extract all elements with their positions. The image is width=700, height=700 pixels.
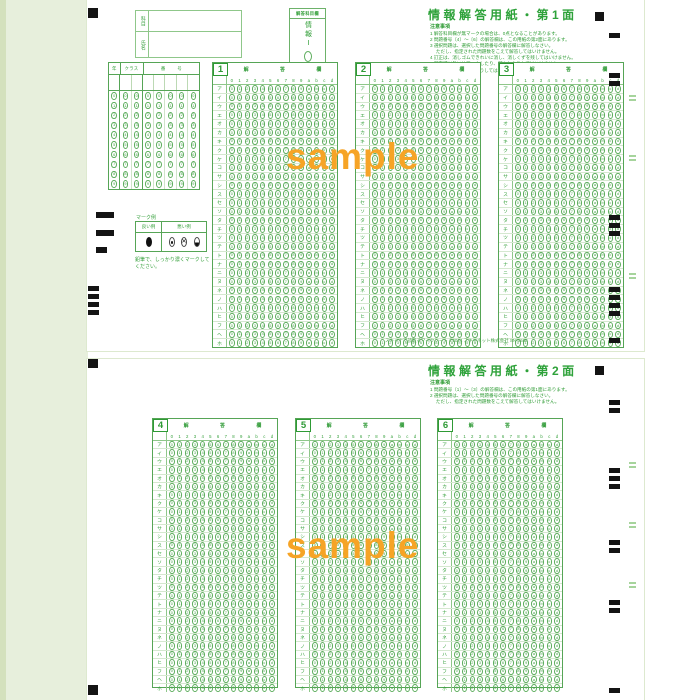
mark-bubble[interactable]: 4: [200, 449, 206, 456]
mark-bubble[interactable]: 4: [546, 190, 552, 197]
mark-bubble[interactable]: 7: [569, 225, 575, 232]
mark-bubble[interactable]: 9: [584, 85, 590, 92]
mark-bubble[interactable]: 2: [388, 331, 394, 338]
mark-bubble[interactable]: 3: [192, 508, 198, 515]
mark-bubble[interactable]: 5: [411, 225, 417, 232]
mark-bubble[interactable]: 5: [208, 458, 214, 465]
mark-bubble[interactable]: 1: [237, 85, 243, 92]
mark-bubble[interactable]: 5: [554, 339, 560, 346]
mark-bubble[interactable]: a: [592, 322, 598, 329]
mark-bubble[interactable]: 2: [245, 208, 251, 215]
mark-bubble[interactable]: 0: [515, 173, 521, 180]
mark-bubble[interactable]: 1: [523, 287, 529, 294]
mark-bubble[interactable]: b: [314, 111, 320, 118]
mark-bubble[interactable]: 3: [335, 592, 341, 599]
mark-bubble[interactable]: 4: [403, 287, 409, 294]
mark-bubble[interactable]: a: [246, 651, 252, 658]
mark-bubble[interactable]: a: [449, 147, 455, 154]
mark-bubble[interactable]: 6: [215, 500, 221, 507]
mark-bubble[interactable]: 7: [283, 339, 289, 346]
mark-bubble[interactable]: 4: [546, 269, 552, 276]
mark-bubble[interactable]: 0: [515, 164, 521, 171]
mark-bubble[interactable]: 7: [569, 111, 575, 118]
mark-bubble[interactable]: 0: [372, 182, 378, 189]
mark-bubble[interactable]: 9: [238, 609, 244, 616]
mark-bubble[interactable]: 2: [470, 558, 476, 565]
mark-bubble[interactable]: b: [254, 558, 260, 565]
mark-bubble[interactable]: 4: [260, 129, 266, 136]
mark-bubble[interactable]: 7: [223, 668, 229, 675]
mark-bubble[interactable]: 5: [554, 331, 560, 338]
mark-bubble[interactable]: 4: [343, 626, 349, 633]
mark-bubble[interactable]: d: [554, 668, 560, 675]
mark-bubble[interactable]: 8: [231, 651, 237, 658]
mark-bubble[interactable]: 5: [411, 208, 417, 215]
mark-bubble[interactable]: 6: [275, 94, 281, 101]
mark-bubble[interactable]: 1: [237, 278, 243, 285]
mark-bubble[interactable]: 0: [312, 634, 318, 641]
mark-bubble[interactable]: a: [449, 111, 455, 118]
mark-bubble[interactable]: 0: [515, 278, 521, 285]
mark-bubble[interactable]: c: [262, 567, 268, 574]
mark-bubble[interactable]: c: [465, 296, 471, 303]
mark-bubble[interactable]: 0: [454, 533, 460, 540]
mark-bubble[interactable]: 5: [208, 617, 214, 624]
mark-bubble[interactable]: 1: [523, 103, 529, 110]
mark-bubble[interactable]: d: [554, 651, 560, 658]
mark-bubble[interactable]: 9: [584, 296, 590, 303]
mark-bubble[interactable]: 4: [260, 331, 266, 338]
mark-bubble[interactable]: 2: [328, 475, 334, 482]
mark-bubble[interactable]: a: [449, 269, 455, 276]
mark-bubble[interactable]: 4: [200, 441, 206, 448]
mark-bubble[interactable]: 1: [380, 322, 386, 329]
mark-bubble[interactable]: c: [322, 217, 328, 224]
mark-bubble[interactable]: 9: [238, 676, 244, 683]
mark-bubble[interactable]: 2: [388, 252, 394, 259]
mark-bubble[interactable]: 2: [531, 190, 537, 197]
mark-bubble[interactable]: 3: [335, 676, 341, 683]
mark-bubble[interactable]: 5: [493, 558, 499, 565]
mark-bubble[interactable]: 2: [245, 85, 251, 92]
mark-bubble[interactable]: 4: [343, 466, 349, 473]
mark-bubble[interactable]: d: [412, 483, 418, 490]
mark-bubble[interactable]: 0: [515, 155, 521, 162]
mark-bubble[interactable]: c: [547, 491, 553, 498]
mark-bubble[interactable]: 8: [168, 171, 174, 178]
mark-bubble[interactable]: 8: [374, 475, 380, 482]
mark-bubble[interactable]: 4: [260, 111, 266, 118]
mark-bubble[interactable]: 2: [388, 208, 394, 215]
mark-bubble[interactable]: 7: [569, 155, 575, 162]
mark-bubble[interactable]: 6: [215, 533, 221, 540]
mark-bubble[interactable]: d: [554, 617, 560, 624]
mark-bubble[interactable]: 6: [358, 600, 364, 607]
mark-bubble[interactable]: 1: [320, 458, 326, 465]
mark-bubble[interactable]: 6: [561, 339, 567, 346]
mark-bubble[interactable]: b: [254, 575, 260, 582]
mark-bubble[interactable]: 0: [454, 458, 460, 465]
mark-bubble[interactable]: d: [472, 269, 478, 276]
mark-bubble[interactable]: c: [547, 483, 553, 490]
mark-bubble[interactable]: 6: [418, 199, 424, 206]
mark-bubble[interactable]: 5: [411, 182, 417, 189]
mark-bubble[interactable]: a: [592, 287, 598, 294]
mark-bubble[interactable]: 2: [388, 217, 394, 224]
mark-bubble[interactable]: 0: [169, 491, 175, 498]
mark-bubble[interactable]: 0: [372, 304, 378, 311]
mark-bubble[interactable]: 8: [577, 243, 583, 250]
mark-bubble[interactable]: c: [322, 103, 328, 110]
mark-bubble[interactable]: 6: [418, 313, 424, 320]
mark-bubble[interactable]: 1: [168, 102, 174, 109]
mark-bubble[interactable]: b: [397, 659, 403, 666]
mark-bubble[interactable]: 5: [208, 441, 214, 448]
mark-bubble[interactable]: 7: [426, 313, 432, 320]
mark-bubble[interactable]: 7: [569, 85, 575, 92]
mark-bubble[interactable]: 4: [200, 609, 206, 616]
mark-bubble[interactable]: a: [306, 111, 312, 118]
mark-bubble[interactable]: 1: [380, 208, 386, 215]
mark-bubble[interactable]: 5: [208, 567, 214, 574]
mark-bubble[interactable]: a: [592, 85, 598, 92]
mark-bubble[interactable]: d: [329, 208, 335, 215]
mark-bubble[interactable]: 9: [584, 120, 590, 127]
mark-bubble[interactable]: 0: [454, 475, 460, 482]
mark-bubble[interactable]: 7: [569, 138, 575, 145]
mark-bubble[interactable]: 5: [554, 304, 560, 311]
mark-bubble[interactable]: 5: [268, 287, 274, 294]
mark-bubble[interactable]: 7: [569, 103, 575, 110]
mark-bubble[interactable]: 5: [268, 111, 274, 118]
mark-bubble[interactable]: 1: [523, 111, 529, 118]
mark-bubble[interactable]: c: [405, 475, 411, 482]
mark-bubble[interactable]: 1: [380, 313, 386, 320]
mark-bubble[interactable]: d: [472, 190, 478, 197]
mark-bubble[interactable]: 4: [485, 651, 491, 658]
mark-bubble[interactable]: 5: [208, 475, 214, 482]
mark-bubble[interactable]: c: [262, 634, 268, 641]
mark-bubble[interactable]: 5: [554, 217, 560, 224]
mark-bubble[interactable]: 4: [200, 676, 206, 683]
mark-bubble[interactable]: 0: [454, 626, 460, 633]
mark-bubble[interactable]: 6: [215, 508, 221, 515]
mark-bubble[interactable]: 4: [485, 441, 491, 448]
mark-bubble[interactable]: a: [531, 676, 537, 683]
mark-bubble[interactable]: 5: [268, 234, 274, 241]
mark-bubble[interactable]: 8: [434, 243, 440, 250]
mark-bubble[interactable]: d: [412, 466, 418, 473]
mark-bubble[interactable]: 6: [500, 500, 506, 507]
mark-bubble[interactable]: 5: [351, 517, 357, 524]
mark-bubble[interactable]: 1: [177, 668, 183, 675]
mark-bubble[interactable]: a: [246, 567, 252, 574]
mark-bubble[interactable]: 0: [454, 542, 460, 549]
mark-bubble[interactable]: 0: [229, 190, 235, 197]
mark-bubble[interactable]: 8: [374, 466, 380, 473]
mark-bubble[interactable]: 9: [441, 234, 447, 241]
mark-bubble[interactable]: c: [405, 491, 411, 498]
mark-bubble[interactable]: c: [547, 466, 553, 473]
mark-bubble[interactable]: 6: [561, 331, 567, 338]
mark-bubble[interactable]: c: [547, 508, 553, 515]
mark-bubble[interactable]: 1: [320, 466, 326, 473]
mark-bubble[interactable]: 3: [335, 475, 341, 482]
mark-bubble[interactable]: d: [269, 600, 275, 607]
mark-bubble[interactable]: 1: [177, 626, 183, 633]
mark-bubble[interactable]: b: [314, 313, 320, 320]
mark-bubble[interactable]: d: [472, 252, 478, 259]
mark-bubble[interactable]: 0: [372, 331, 378, 338]
mark-bubble[interactable]: 8: [577, 173, 583, 180]
mark-bubble[interactable]: 4: [485, 508, 491, 515]
mark-bubble[interactable]: 4: [343, 575, 349, 582]
mark-bubble[interactable]: d: [554, 609, 560, 616]
mark-bubble[interactable]: d: [269, 668, 275, 675]
mark-bubble[interactable]: 2: [531, 199, 537, 206]
mark-bubble[interactable]: d: [615, 190, 621, 197]
mark-bubble[interactable]: 9: [238, 651, 244, 658]
mark-bubble[interactable]: 4: [343, 684, 349, 691]
mark-bubble[interactable]: d: [269, 684, 275, 691]
mark-bubble[interactable]: 6: [418, 85, 424, 92]
mark-bubble[interactable]: b: [539, 441, 545, 448]
mark-bubble[interactable]: 5: [493, 517, 499, 524]
mark-bubble[interactable]: 4: [260, 304, 266, 311]
mark-bubble[interactable]: d: [472, 304, 478, 311]
mark-bubble[interactable]: 9: [238, 449, 244, 456]
mark-bubble[interactable]: 4: [403, 111, 409, 118]
mark-bubble[interactable]: 0: [454, 609, 460, 616]
mark-bubble[interactable]: 9: [584, 103, 590, 110]
mark-bubble[interactable]: 1: [177, 558, 183, 565]
mark-bubble[interactable]: b: [397, 517, 403, 524]
mark-bubble[interactable]: 2: [185, 575, 191, 582]
mark-bubble[interactable]: 0: [312, 475, 318, 482]
mark-bubble[interactable]: 6: [275, 234, 281, 241]
mark-bubble[interactable]: 9: [381, 575, 387, 582]
mark-bubble[interactable]: 3: [477, 500, 483, 507]
mark-bubble[interactable]: d: [472, 199, 478, 206]
mark-bubble[interactable]: 2: [185, 651, 191, 658]
mark-bubble[interactable]: b: [397, 642, 403, 649]
mark-bubble[interactable]: 3: [252, 164, 258, 171]
mark-bubble[interactable]: 6: [215, 525, 221, 532]
mark-bubble[interactable]: b: [254, 676, 260, 683]
mark-bubble[interactable]: 1: [237, 208, 243, 215]
mark-bubble[interactable]: c: [322, 296, 328, 303]
mark-bubble[interactable]: 5: [411, 261, 417, 268]
mark-bubble[interactable]: 1: [177, 517, 183, 524]
mark-bubble[interactable]: 0: [169, 617, 175, 624]
mark-bubble[interactable]: 4: [200, 592, 206, 599]
mark-bubble[interactable]: 7: [223, 483, 229, 490]
mark-bubble[interactable]: 1: [320, 617, 326, 624]
mark-bubble[interactable]: 9: [523, 533, 529, 540]
mark-bubble[interactable]: d: [329, 85, 335, 92]
mark-bubble[interactable]: b: [254, 659, 260, 666]
mark-bubble[interactable]: 2: [185, 584, 191, 591]
mark-bubble[interactable]: 0: [515, 304, 521, 311]
mark-bubble[interactable]: 7: [366, 634, 372, 641]
mark-bubble[interactable]: d: [269, 626, 275, 633]
mark-bubble[interactable]: 7: [508, 634, 514, 641]
mark-bubble[interactable]: 9: [584, 339, 590, 346]
mark-bubble[interactable]: 6: [358, 668, 364, 675]
mark-bubble[interactable]: d: [554, 626, 560, 633]
mark-bubble[interactable]: 5: [208, 684, 214, 691]
mark-bubble[interactable]: 9: [441, 85, 447, 92]
mark-bubble[interactable]: 3: [335, 659, 341, 666]
mark-bubble[interactable]: 4: [546, 339, 552, 346]
mark-bubble[interactable]: 5: [351, 592, 357, 599]
mark-bubble[interactable]: 0: [312, 651, 318, 658]
mark-bubble[interactable]: 1: [523, 252, 529, 259]
mark-bubble[interactable]: 9: [238, 642, 244, 649]
mark-bubble[interactable]: 0: [169, 676, 175, 683]
mark-bubble[interactable]: b: [254, 533, 260, 540]
mark-bubble[interactable]: 8: [156, 171, 162, 178]
mark-bubble[interactable]: 9: [381, 491, 387, 498]
mark-bubble[interactable]: d: [472, 164, 478, 171]
mark-bubble[interactable]: 4: [343, 500, 349, 507]
mark-bubble[interactable]: 0: [372, 287, 378, 294]
mark-bubble[interactable]: 2: [470, 500, 476, 507]
mark-bubble[interactable]: b: [254, 567, 260, 574]
mark-bubble[interactable]: 3: [395, 120, 401, 127]
mark-bubble[interactable]: 2: [185, 517, 191, 524]
mark-bubble[interactable]: c: [262, 651, 268, 658]
mark-bubble[interactable]: 0: [229, 304, 235, 311]
mark-bubble[interactable]: d: [329, 252, 335, 259]
mark-bubble[interactable]: 2: [328, 609, 334, 616]
mark-bubble[interactable]: 6: [275, 182, 281, 189]
mark-bubble[interactable]: 2: [328, 575, 334, 582]
mark-bubble[interactable]: 5: [134, 141, 140, 148]
mark-bubble[interactable]: 5: [554, 182, 560, 189]
mark-bubble[interactable]: 7: [508, 475, 514, 482]
mark-bubble[interactable]: 7: [283, 278, 289, 285]
mark-bubble[interactable]: c: [547, 517, 553, 524]
mark-bubble[interactable]: 1: [237, 304, 243, 311]
mark-bubble[interactable]: c: [262, 500, 268, 507]
mark-bubble[interactable]: b: [397, 684, 403, 691]
mark-bubble[interactable]: b: [600, 261, 606, 268]
mark-bubble[interactable]: 7: [223, 441, 229, 448]
mark-bubble[interactable]: 6: [358, 651, 364, 658]
mark-bubble[interactable]: 8: [231, 668, 237, 675]
mark-bubble[interactable]: b: [254, 668, 260, 675]
mark-bubble[interactable]: 9: [523, 458, 529, 465]
mark-bubble[interactable]: b: [539, 558, 545, 565]
mark-bubble[interactable]: 0: [229, 164, 235, 171]
mark-bubble[interactable]: 6: [500, 676, 506, 683]
mark-bubble[interactable]: 9: [238, 500, 244, 507]
mark-bubble[interactable]: 8: [123, 171, 129, 178]
mark-bubble[interactable]: 4: [546, 94, 552, 101]
mark-bubble[interactable]: c: [322, 243, 328, 250]
mark-bubble[interactable]: a: [531, 609, 537, 616]
mark-bubble[interactable]: a: [531, 550, 537, 557]
mark-bubble[interactable]: a: [592, 94, 598, 101]
mark-bubble[interactable]: 6: [123, 151, 129, 158]
mark-bubble[interactable]: 7: [366, 684, 372, 691]
mark-bubble[interactable]: 6: [500, 449, 506, 456]
mark-bubble[interactable]: b: [397, 634, 403, 641]
mark-bubble[interactable]: 8: [434, 111, 440, 118]
mark-bubble[interactable]: 6: [215, 668, 221, 675]
mark-bubble[interactable]: 6: [561, 252, 567, 259]
mark-bubble[interactable]: 9: [584, 322, 590, 329]
mark-bubble[interactable]: 8: [374, 676, 380, 683]
mark-bubble[interactable]: b: [457, 199, 463, 206]
mark-bubble[interactable]: b: [600, 331, 606, 338]
mark-bubble[interactable]: b: [539, 458, 545, 465]
mark-bubble[interactable]: 1: [462, 533, 468, 540]
mark-bubble[interactable]: 7: [223, 600, 229, 607]
mark-bubble[interactable]: 4: [403, 182, 409, 189]
mark-bubble[interactable]: d: [269, 449, 275, 456]
mark-bubble[interactable]: a: [246, 466, 252, 473]
mark-bubble[interactable]: 6: [418, 243, 424, 250]
mark-bubble[interactable]: c: [405, 617, 411, 624]
mark-bubble[interactable]: 8: [291, 208, 297, 215]
mark-bubble[interactable]: a: [306, 287, 312, 294]
mark-bubble[interactable]: 6: [275, 217, 281, 224]
mark-bubble[interactable]: 0: [168, 92, 174, 99]
mark-bubble[interactable]: 7: [223, 634, 229, 641]
mark-bubble[interactable]: 8: [577, 261, 583, 268]
mark-bubble[interactable]: 2: [470, 626, 476, 633]
mark-bubble[interactable]: c: [405, 684, 411, 691]
mark-bubble[interactable]: 5: [208, 634, 214, 641]
mark-bubble[interactable]: 1: [320, 668, 326, 675]
mark-bubble[interactable]: 6: [500, 584, 506, 591]
mark-bubble[interactable]: 4: [200, 575, 206, 582]
mark-bubble[interactable]: 9: [584, 234, 590, 241]
mark-bubble[interactable]: a: [246, 592, 252, 599]
mark-bubble[interactable]: 1: [177, 458, 183, 465]
mark-bubble[interactable]: 3: [395, 287, 401, 294]
mark-bubble[interactable]: 0: [454, 567, 460, 574]
mark-bubble[interactable]: 1: [523, 182, 529, 189]
mark-bubble[interactable]: c: [322, 313, 328, 320]
mark-bubble[interactable]: 2: [388, 120, 394, 127]
mark-bubble[interactable]: a: [389, 626, 395, 633]
mark-bubble[interactable]: 3: [477, 617, 483, 624]
mark-bubble[interactable]: c: [322, 111, 328, 118]
mark-bubble[interactable]: 3: [538, 173, 544, 180]
mark-bubble[interactable]: 5: [351, 617, 357, 624]
mark-bubble[interactable]: d: [269, 458, 275, 465]
mark-bubble[interactable]: 8: [291, 331, 297, 338]
mark-bubble[interactable]: 3: [477, 567, 483, 574]
mark-bubble[interactable]: 3: [477, 575, 483, 582]
mark-bubble[interactable]: c: [547, 659, 553, 666]
mark-bubble[interactable]: 1: [237, 217, 243, 224]
mark-bubble[interactable]: 1: [523, 147, 529, 154]
mark-bubble[interactable]: 5: [268, 331, 274, 338]
mark-bubble[interactable]: 0: [169, 533, 175, 540]
mark-bubble[interactable]: c: [322, 94, 328, 101]
mark-bubble[interactable]: c: [322, 208, 328, 215]
mark-bubble[interactable]: 0: [229, 313, 235, 320]
mark-bubble[interactable]: 6: [215, 458, 221, 465]
mark-bubble[interactable]: d: [269, 584, 275, 591]
mark-bubble[interactable]: 0: [515, 111, 521, 118]
mark-bubble[interactable]: 9: [238, 458, 244, 465]
mark-bubble[interactable]: d: [412, 584, 418, 591]
